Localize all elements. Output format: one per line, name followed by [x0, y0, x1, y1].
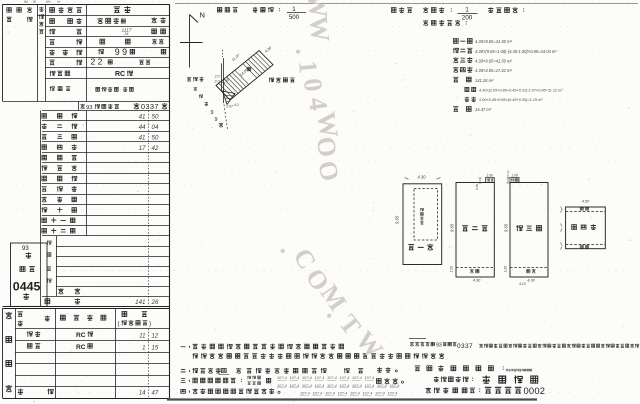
svg-text:9: 9	[211, 110, 214, 116]
svg-text:107-4: 107-4	[377, 384, 387, 388]
svg-text:107-4: 107-4	[300, 391, 310, 395]
svg-text:107-4: 107-4	[352, 376, 362, 380]
svg-text:0002: 0002	[524, 385, 546, 396]
svg-text:1.00: 1.00	[486, 173, 493, 177]
svg-text:11.07: 11.07	[231, 53, 241, 63]
svg-text:N: N	[200, 11, 205, 20]
svg-text:2 2: 2 2	[91, 56, 103, 66]
svg-text:4.30×4.05=17.42 m²: 4.30×4.05=17.42 m²	[475, 68, 513, 73]
svg-text:107-4: 107-4	[327, 376, 337, 380]
svg-text:1.00×0.45+0.85×(0.45+0.30)=1.1: 1.00×0.45+0.85×(0.45+0.30)=1.15 m²	[479, 98, 543, 102]
svg-text:107-4: 107-4	[363, 391, 373, 395]
svg-text:107-4: 107-4	[277, 376, 287, 380]
svg-text:15: 15	[152, 345, 159, 351]
svg-text:1.25: 1.25	[504, 266, 508, 273]
svg-text:1: 1	[142, 345, 145, 351]
svg-text:1: 1	[465, 6, 469, 13]
svg-text:4.10: 4.10	[519, 282, 526, 286]
svg-text:4.30: 4.30	[264, 45, 273, 53]
svg-text:107-4: 107-4	[315, 384, 325, 388]
svg-text:500: 500	[289, 14, 300, 21]
svg-text:141: 141	[135, 299, 145, 306]
svg-text:50: 50	[152, 114, 159, 121]
svg-text:): )	[149, 322, 151, 328]
svg-text:0445: 0445	[13, 280, 41, 294]
svg-text:4.3: 4.3	[234, 103, 239, 107]
svg-text:141.26 m²: 141.26 m²	[475, 78, 494, 83]
svg-text:14: 14	[139, 391, 146, 397]
svg-text:41: 41	[139, 135, 146, 142]
svg-text:1.25: 1.25	[450, 266, 454, 273]
svg-text:107-4: 107-4	[350, 391, 360, 395]
svg-text:93: 93	[436, 343, 442, 349]
svg-text:12: 12	[152, 334, 159, 340]
svg-text:4.30×9.65=41.50 m²: 4.30×9.65=41.50 m²	[475, 58, 513, 63]
svg-text:107-4: 107-4	[302, 376, 312, 380]
svg-text:-24: -24	[124, 32, 129, 36]
svg-text:107-4: 107-4	[365, 384, 375, 388]
svg-text:107-4: 107-4	[340, 384, 350, 388]
svg-text:93: 93	[86, 105, 92, 111]
svg-text:4.30: 4.30	[417, 175, 426, 180]
svg-text:44: 44	[139, 124, 146, 131]
svg-text:93: 93	[22, 246, 29, 252]
svg-text:RC: RC	[115, 71, 125, 78]
svg-text:47: 47	[152, 391, 159, 397]
svg-text:1.00: 1.00	[511, 173, 518, 177]
svg-text:107-4: 107-4	[315, 376, 325, 380]
svg-text:107-4: 107-4	[388, 391, 398, 395]
svg-text:107-4: 107-4	[313, 391, 323, 395]
svg-text:4.30: 4.30	[473, 277, 481, 282]
svg-text:107-4: 107-4	[290, 384, 300, 388]
svg-text:11: 11	[139, 334, 145, 340]
svg-text:26: 26	[151, 299, 159, 306]
svg-text:41: 41	[139, 114, 146, 121]
svg-text:107-4: 107-4	[327, 384, 337, 388]
svg-text:107-4: 107-4	[302, 384, 312, 388]
svg-text:9.65: 9.65	[504, 223, 509, 232]
svg-text:14.47 m²: 14.47 m²	[475, 107, 492, 112]
svg-text:17: 17	[139, 145, 146, 152]
svg-text:1.07: 1.07	[226, 105, 234, 109]
svg-text:9.65: 9.65	[450, 223, 455, 232]
svg-text:4.30×9.65=41.50 m²: 4.30×9.65=41.50 m²	[475, 39, 513, 44]
svg-text:107-4: 107-4	[390, 384, 400, 388]
svg-text:4.30: 4.30	[527, 277, 535, 282]
svg-text:107-4: 107-4	[375, 391, 385, 395]
svg-text:107-4: 107-4	[352, 384, 362, 388]
svg-text:107-4: 107-4	[365, 376, 375, 380]
svg-text:4.30×(9.65+1.00)-(4.30-1.00)×0: 4.30×(9.65+1.00)-(4.30-1.00)×0.85=44.04 …	[475, 49, 557, 54]
svg-text:RC: RC	[76, 344, 86, 351]
svg-text:9 9: 9 9	[115, 47, 127, 57]
svg-text:0337: 0337	[457, 343, 473, 350]
svg-text:107-4: 107-4	[340, 376, 350, 380]
svg-text:4.30×(2.05+0.85+0.45+0.31)-1.0: 4.30×(2.05+0.85+0.45+0.31)-1.07×0.85=11.…	[479, 88, 563, 92]
svg-text:3: 3	[507, 170, 509, 174]
svg-text:50: 50	[152, 135, 159, 142]
svg-text:0.45: 0.45	[475, 184, 479, 190]
svg-text:RC: RC	[76, 332, 86, 339]
svg-text:4.50: 4.50	[582, 199, 590, 204]
svg-text:2.0: 2.0	[214, 75, 220, 79]
svg-text:200: 200	[462, 14, 473, 21]
svg-text:107-4: 107-4	[277, 384, 287, 388]
svg-text:0337: 0337	[141, 102, 159, 111]
svg-text:9: 9	[215, 117, 218, 123]
svg-text:9.65: 9.65	[395, 215, 400, 224]
svg-text:42: 42	[152, 145, 159, 152]
svg-text:107-4: 107-4	[325, 391, 335, 395]
svg-text:2.0: 2.0	[214, 80, 220, 84]
svg-text:(: (	[118, 322, 120, 328]
svg-text:04: 04	[152, 124, 159, 131]
svg-text:107-4: 107-4	[290, 376, 300, 380]
svg-text:107-4: 107-4	[338, 391, 348, 395]
